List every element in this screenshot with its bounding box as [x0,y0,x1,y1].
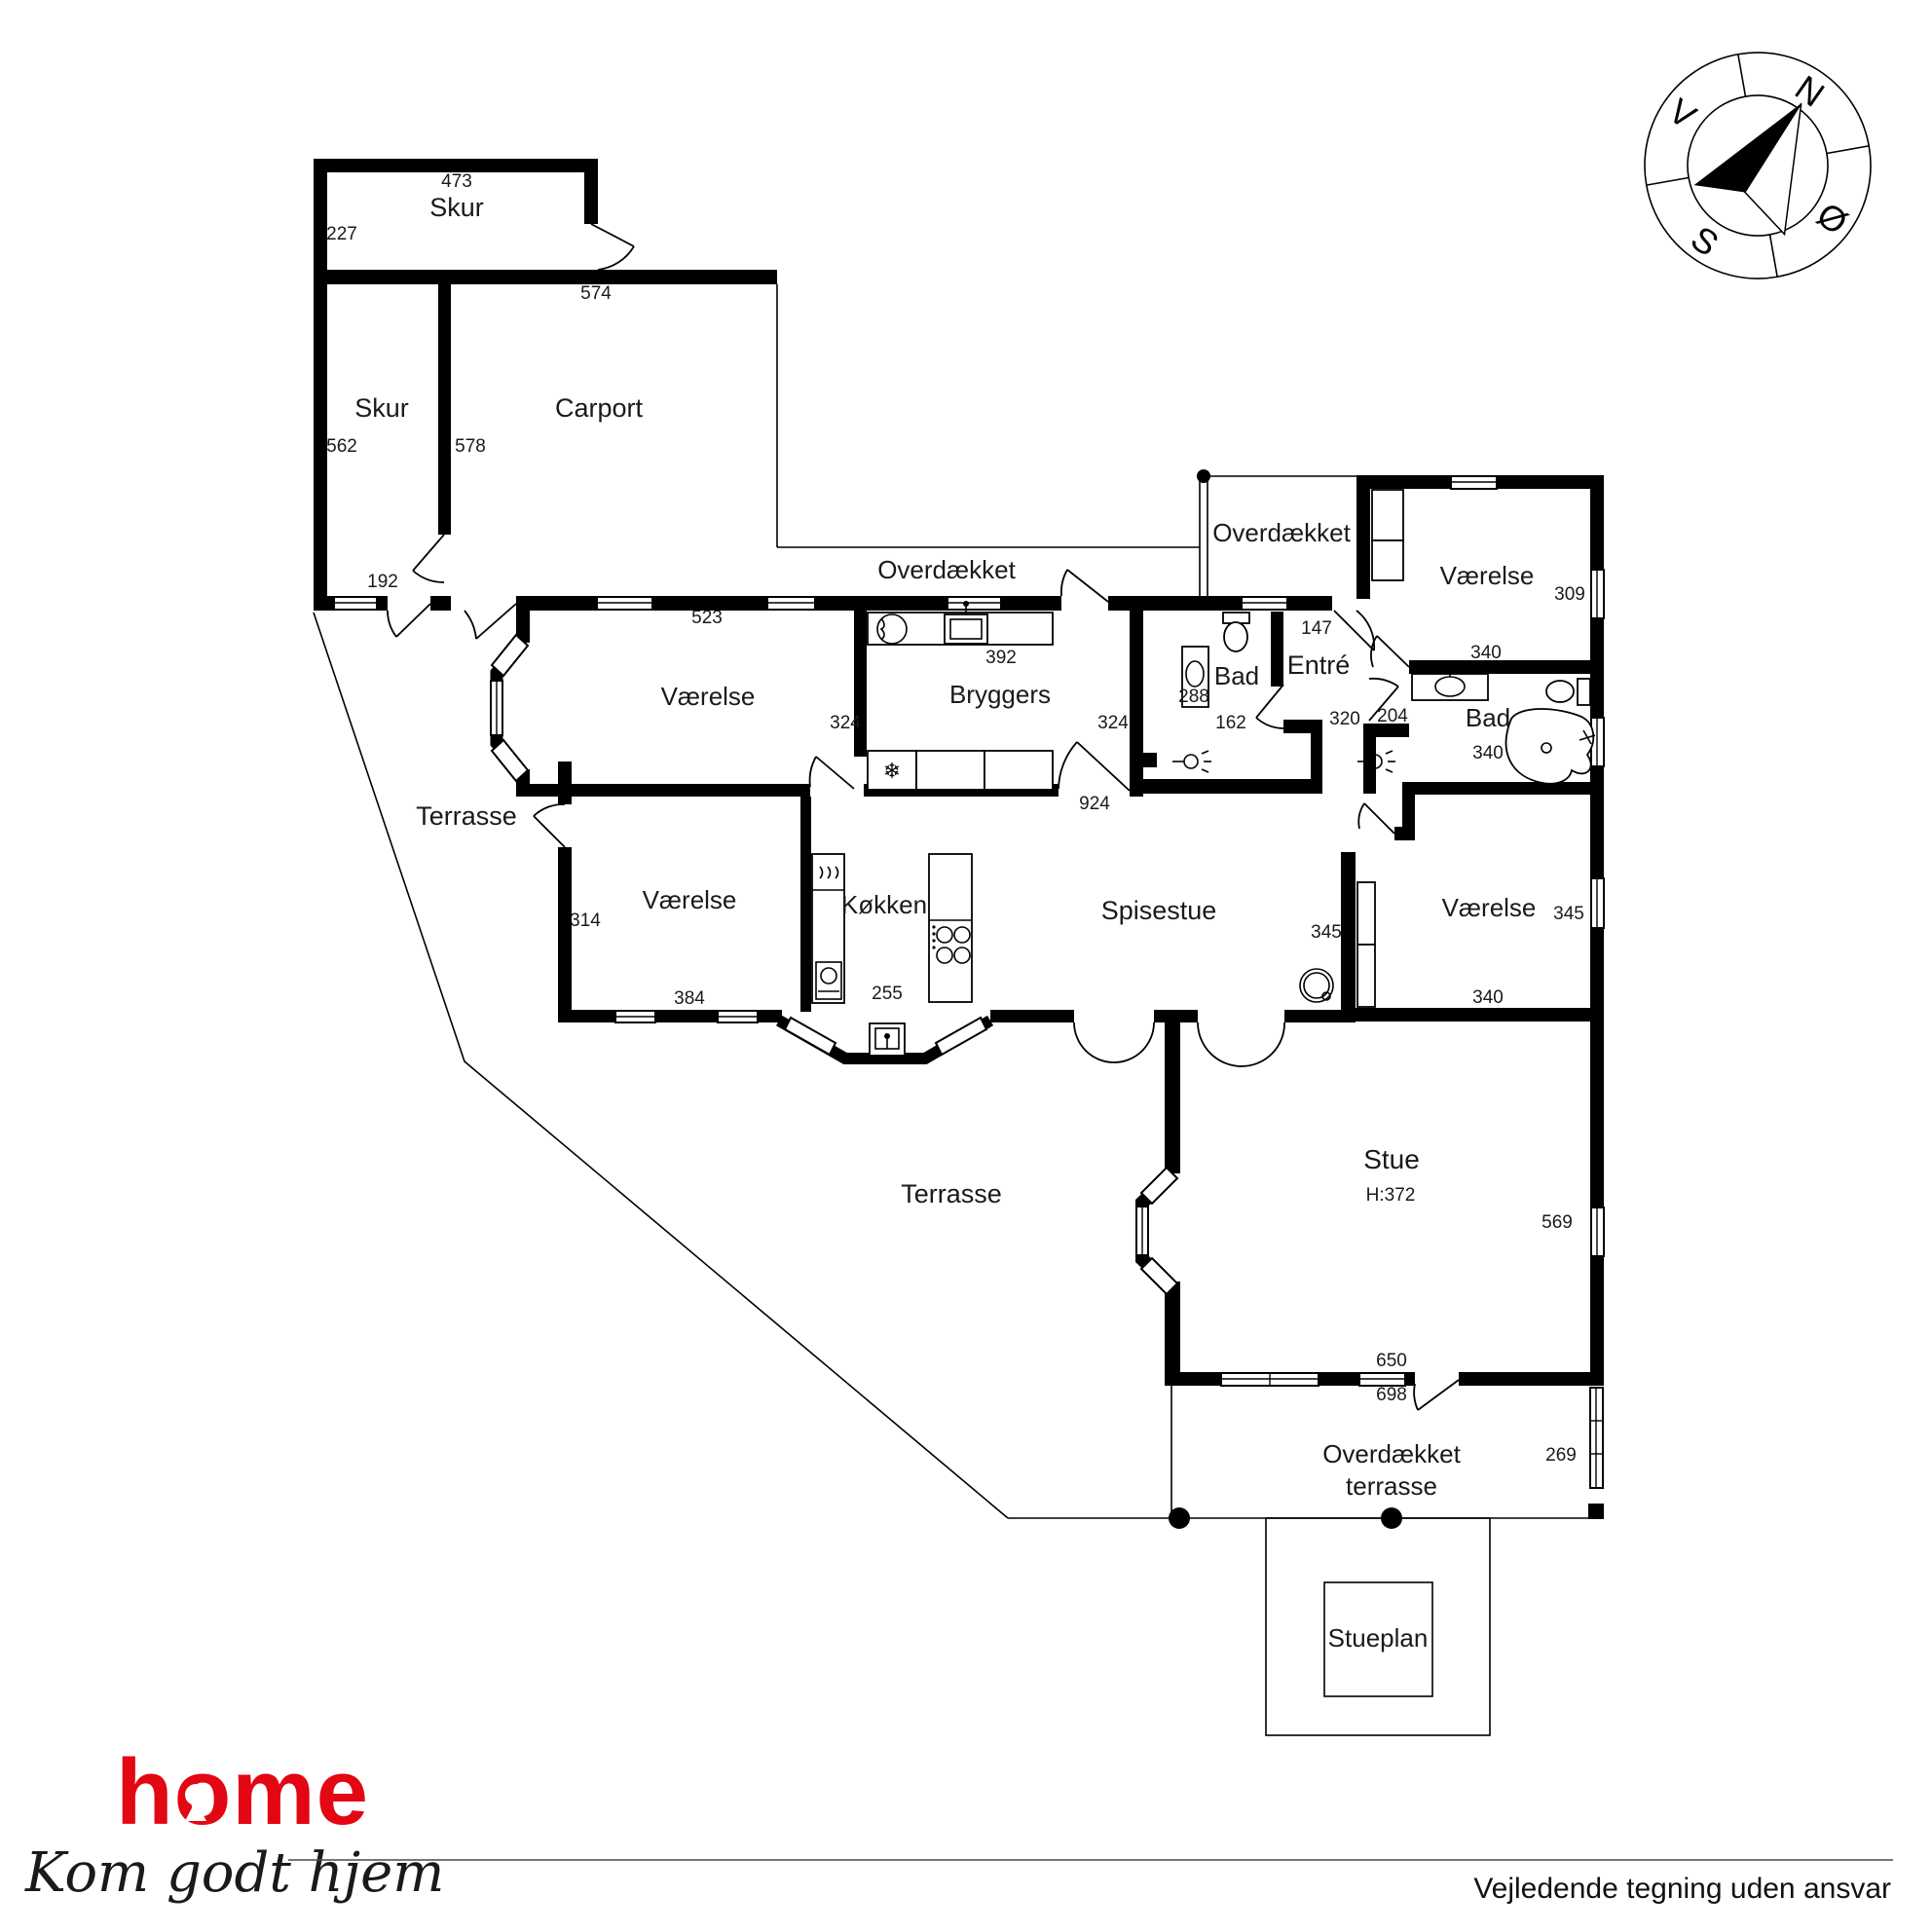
room-label-koekken: Køkken [841,890,927,919]
plan-title: Stueplan [1328,1623,1429,1653]
dim-562: 562 [326,436,357,457]
dim-204: 204 [1377,706,1408,726]
room-label-terrasse-2: Terrasse [901,1179,1002,1208]
dim-574: 574 [580,283,612,304]
shower-icon [1172,751,1211,772]
compass-rose: N Ø S V [1600,8,1914,322]
dim-h372: H:372 [1366,1185,1416,1206]
dim-650: 650 [1376,1351,1407,1371]
dim-340-c: 340 [1472,987,1504,1008]
room-label-overdaekket-front: Overdækket [877,555,1016,584]
walls [314,159,1604,1519]
disclaimer-text: Vejledende tegning uden ansvar [1473,1873,1891,1905]
dim-324-b: 324 [1097,713,1129,733]
floorplan-page: ❄ [0,0,1932,1932]
doors [388,224,1459,1410]
room-label-terrasse-1: Terrasse [416,801,517,831]
room-label-vaerelse-ne: Værelse [1440,561,1535,590]
room-label-bryggers: Bryggers [949,680,1051,709]
logo-tagline: Kom godt hjem [24,1841,444,1905]
dim-147: 147 [1301,618,1332,639]
wardrobe [1372,540,1403,580]
cabinet [916,751,985,790]
room-label-skur-top: Skur [429,193,484,222]
room-label-vaerelse-sw: Værelse [643,885,737,914]
dim-340-a: 340 [1470,643,1502,663]
room-label-vaerelse-e: Værelse [1442,893,1537,922]
dim-269: 269 [1545,1445,1577,1466]
dim-324-a: 324 [830,713,861,733]
porch-post [1197,469,1210,483]
cabinet [985,751,1053,790]
room-label-entre: Entré [1287,650,1351,680]
room-label-skur-2: Skur [354,393,409,423]
dim-569: 569 [1542,1212,1573,1233]
room-label-bad-mid: Bad [1214,661,1259,690]
dim-345-b: 345 [1553,904,1584,924]
wood-stove-icon [1300,969,1333,1002]
freezer-snowflake-icon: ❄ [883,760,901,784]
dim-578: 578 [455,436,486,457]
compass-e: Ø [1809,194,1854,242]
room-label-vaerelse-nw: Værelse [661,682,756,711]
dim-227: 227 [326,224,357,244]
shower-icon [1357,751,1395,772]
terrace-post [1169,1507,1190,1529]
dim-320: 320 [1329,709,1360,729]
footer: home Kom godt hjem Vejledende tegning ud… [24,1740,1893,1905]
dim-392: 392 [985,648,1017,668]
wardrobe [1357,945,1375,1007]
dim-314: 314 [570,910,601,931]
dim-340-b: 340 [1472,743,1504,763]
dim-698: 698 [1376,1385,1407,1405]
wardrobe [1372,490,1403,540]
dim-924: 924 [1079,794,1110,814]
room-label-stue: Stue [1363,1144,1420,1174]
room-label-spisestue: Spisestue [1101,896,1217,925]
room-label-overdaekket-porch: Overdækket [1212,518,1351,547]
dim-384: 384 [674,988,705,1009]
toilet-icon [1578,679,1590,705]
floorplan-drawing: ❄ [0,0,1932,1932]
dim-473: 473 [441,171,472,192]
room-label-carport: Carport [555,393,644,423]
room-label-ovd-terrasse-2: terrasse [1346,1471,1437,1501]
dim-162: 162 [1215,713,1246,733]
dim-523: 523 [691,608,723,628]
dim-345-a: 345 [1311,922,1342,943]
dim-309: 309 [1554,584,1585,605]
dim-255: 255 [872,984,903,1004]
dim-288: 288 [1178,687,1209,707]
corner-bathtub-icon [1506,709,1594,784]
room-label-bad-right: Bad [1466,703,1510,732]
room-label-ovd-terrasse-1: Overdækket [1322,1439,1461,1468]
wardrobe [1357,882,1375,945]
dim-192: 192 [367,572,398,592]
home-logo: home [116,1740,369,1844]
